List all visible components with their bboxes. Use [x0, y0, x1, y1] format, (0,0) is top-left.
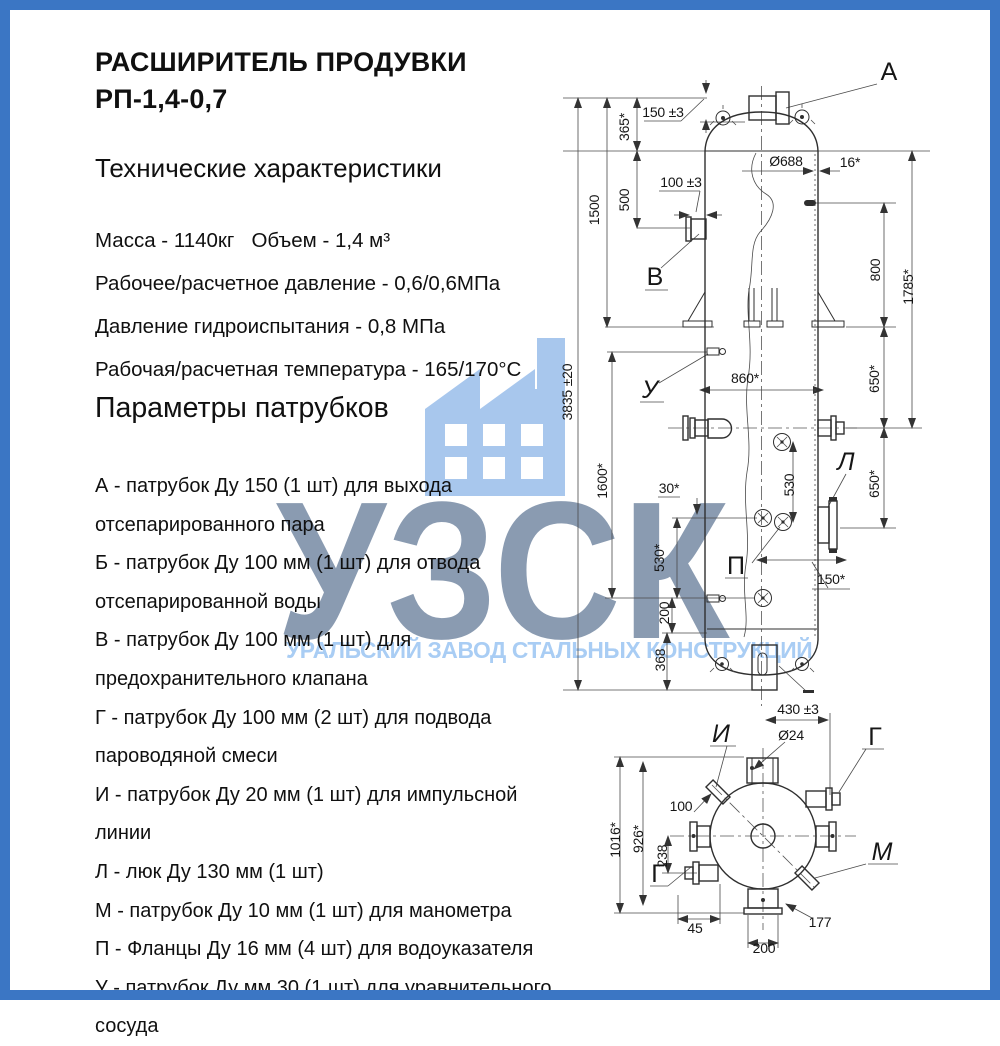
vessel-front-view: [683, 92, 844, 693]
technical-drawing: [0, 0, 1000, 1000]
wall-pin: [804, 200, 816, 206]
label-b-dash: [803, 690, 814, 693]
nozzle-pin-lower: [707, 595, 726, 602]
bottom-nozzle: [752, 645, 777, 690]
bv-right-nozzle: [816, 822, 836, 851]
dimension-lines: [578, 98, 912, 943]
leader-lines: [640, 84, 898, 886]
nozzle-u: [707, 348, 726, 355]
lifting-lug-bottom: [710, 658, 814, 673]
gauge-flanges-p: [755, 434, 792, 607]
support-brackets: [683, 288, 844, 327]
bv-nozzle-g-right: [806, 788, 840, 810]
nozzle-a: [749, 92, 789, 124]
nozzle-v: [686, 217, 706, 241]
manhole-l: [818, 497, 837, 553]
bv-nozzle-i: [706, 780, 730, 804]
bv-left-nozzle: [690, 822, 710, 851]
